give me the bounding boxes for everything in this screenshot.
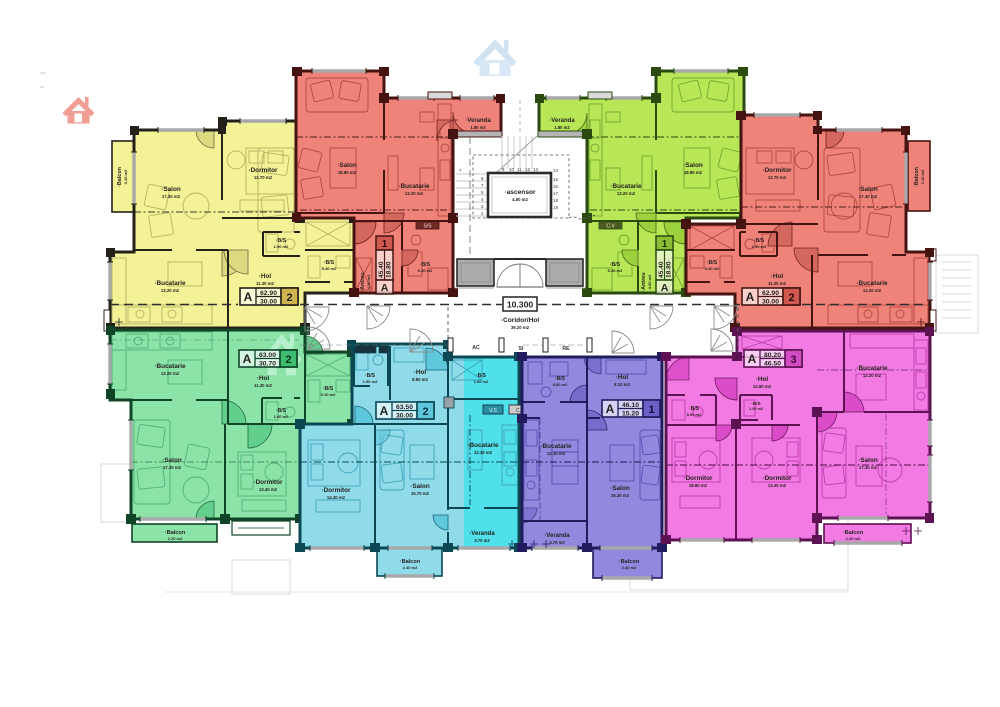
svg-text:17.30 m2: 17.30 m2 [162,194,181,199]
svg-text:3.10 m2: 3.10 m2 [920,169,925,184]
svg-text:·ascensor: ·ascensor [504,189,536,196]
svg-text:45.40: 45.40 [658,261,665,278]
svg-text:5.60 m2: 5.60 m2 [553,382,568,387]
svg-text:·Veranda: ·Veranda [469,531,495,537]
svg-text:·Bucatarie: ·Bucatarie [467,442,499,449]
svg-text:18.80: 18.80 [386,261,393,278]
svg-text:4.80 m2: 4.80 m2 [512,197,528,202]
svg-text:V.S: V.S [489,408,497,414]
svg-text:1.90 m2: 1.90 m2 [363,379,378,384]
svg-text:46.50: 46.50 [764,361,781,368]
svg-text:·Bucatarie: ·Bucatarie [154,363,186,370]
svg-text:1: 1 [648,404,654,416]
svg-text:18.80 m2: 18.80 m2 [684,170,703,175]
svg-text:1.60 m2: 1.60 m2 [274,414,289,419]
svg-text:15: 15 [553,177,558,182]
svg-text:4.30 m2: 4.30 m2 [647,274,652,289]
svg-text:12.70 m2: 12.70 m2 [254,175,273,180]
svg-text:·Dormitor: ·Dormitor [762,167,792,174]
svg-text:16: 16 [553,184,558,189]
svg-text:A: A [748,352,757,366]
svg-text:1: 1 [382,239,388,250]
svg-text:·Salon: ·Salon [858,457,878,464]
svg-text:·Bucatarie: ·Bucatarie [398,183,430,190]
svg-text:2.20 m2: 2.20 m2 [168,536,183,541]
svg-text:5.40 m2: 5.40 m2 [608,268,623,273]
svg-text:·Hol: ·Hol [616,374,629,381]
svg-text:11.30 m2: 11.30 m2 [256,281,275,286]
svg-text:17.30 m2: 17.30 m2 [163,465,182,470]
svg-text:12.20 m2: 12.20 m2 [863,373,882,378]
svg-text:·Veranda: ·Veranda [549,118,575,124]
svg-text:1.80 m2: 1.80 m2 [470,125,486,130]
svg-text:12.70 m2: 12.70 m2 [768,175,787,180]
svg-text:·Bucatarie: ·Bucatarie [856,365,888,372]
svg-text:10: 10 [509,167,514,172]
svg-text:11: 11 [517,167,522,172]
svg-text:13.40 m2: 13.40 m2 [768,483,787,488]
svg-text:·Dormitor: ·Dormitor [762,475,792,482]
svg-text:13.20 m2: 13.20 m2 [161,371,180,376]
svg-text:30.70: 30.70 [259,361,276,368]
svg-text:·Hol: ·Hol [771,273,784,280]
svg-text:5.10 m2: 5.10 m2 [321,392,336,397]
svg-text:45.40: 45.40 [378,261,385,278]
svg-text:2: 2 [422,406,428,418]
svg-text:12.10 m2: 12.10 m2 [547,451,566,456]
svg-text:·Salon: ·Salon [858,186,878,193]
svg-text:3.70 m2: 3.70 m2 [474,538,490,543]
svg-text:2.20 m2: 2.20 m2 [846,536,861,541]
svg-text:18: 18 [553,198,558,203]
svg-text:18.80: 18.80 [666,261,673,278]
svg-text:1.90 m2: 1.90 m2 [274,244,289,249]
svg-text:17.30 m2: 17.30 m2 [859,465,878,470]
svg-text:63.50: 63.50 [396,404,413,411]
svg-text:11.30 m2: 11.30 m2 [768,281,787,286]
svg-text:·Bucatarie: ·Bucatarie [856,280,888,287]
svg-text:3: 3 [790,354,796,366]
svg-text:5.40 m2: 5.40 m2 [322,266,337,271]
svg-text:·Hol: ·Hol [414,369,427,376]
svg-text:11.30 m2: 11.30 m2 [254,383,273,388]
svg-text:13.20 m2: 13.20 m2 [617,191,636,196]
svg-text:2: 2 [285,354,291,366]
svg-text:A: A [661,282,669,294]
svg-text:·Dormitor: ·Dormitor [253,479,283,486]
svg-text:15.20 m2: 15.20 m2 [611,493,630,498]
svg-text:S/S: S/S [423,224,432,230]
svg-text:13.20 m2: 13.20 m2 [405,191,424,196]
svg-text:13.40 m2: 13.40 m2 [259,487,278,492]
svg-text:30.00: 30.00 [396,413,413,420]
svg-text:15.70 m2: 15.70 m2 [411,491,430,496]
svg-text:C.V: C.V [606,224,615,230]
svg-text:·Salon: ·Salon [337,162,357,169]
svg-text:·Hol: ·Hol [259,273,272,280]
svg-text:2: 2 [788,292,794,304]
svg-text:15.20: 15.20 [622,411,639,418]
svg-text:A: A [746,290,755,304]
svg-text:10.300: 10.300 [507,300,534,310]
svg-text:·Bucatarie: ·Bucatarie [540,443,572,450]
svg-text:·Dormitor: ·Dormitor [248,167,278,174]
svg-text:·Bucatarie: ·Bucatarie [154,280,186,287]
svg-text:63.00: 63.00 [259,352,276,359]
svg-text:A: A [243,352,252,366]
svg-text:62.90: 62.90 [260,290,277,297]
svg-text:SI: SI [519,346,524,352]
svg-text:8.10 m2: 8.10 m2 [614,382,630,387]
svg-text:13.20 m2: 13.20 m2 [863,288,882,293]
svg-text:AC: AC [472,345,480,351]
svg-text:·Dormitor: ·Dormitor [683,475,713,482]
svg-text:A: A [244,290,253,304]
svg-text:1: 1 [662,239,668,250]
svg-text:62.90: 62.90 [762,290,779,297]
svg-text:13: 13 [533,167,538,172]
svg-text:2.40 m2: 2.40 m2 [403,565,418,570]
svg-text:5.40 m2: 5.40 m2 [705,266,720,271]
svg-text:·B/S: ·B/S [751,401,760,406]
svg-text:3.10 m2: 3.10 m2 [123,169,128,184]
svg-text:·Salon: ·Salon [161,186,181,193]
svg-text:17.30 m2: 17.30 m2 [859,194,878,199]
svg-text:14: 14 [553,168,558,173]
svg-text:5.00 m2: 5.00 m2 [687,412,702,417]
svg-text:A: A [381,282,389,294]
svg-text:A: A [380,404,389,418]
svg-text:1.60 m2: 1.60 m2 [474,379,489,384]
svg-text:·Salon: ·Salon [410,483,430,490]
svg-text:39.20 m2: 39.20 m2 [511,325,530,330]
svg-text:80.20: 80.20 [764,352,781,359]
svg-text:RE: RE [562,346,570,352]
svg-text:12.80 m2: 12.80 m2 [753,384,772,389]
svg-text:18.80 m2: 18.80 m2 [338,170,357,175]
svg-text:·Coridor/Hol: ·Coridor/Hol [501,317,540,324]
svg-text:12: 12 [525,167,530,172]
svg-text:19: 19 [553,205,558,210]
svg-text:·Salon: ·Salon [162,457,182,464]
svg-text:4.30 m2: 4.30 m2 [366,274,371,289]
svg-text:14.30 m2: 14.30 m2 [327,495,346,500]
svg-text:17: 17 [553,191,558,196]
svg-text:46.10: 46.10 [622,402,639,409]
svg-text:5.40 m2: 5.40 m2 [418,268,433,273]
svg-text:·Hol: ·Hol [756,376,769,383]
svg-text:1.80 m2: 1.80 m2 [554,125,570,130]
svg-text:1.90 m2: 1.90 m2 [752,244,767,249]
svg-text:30.00: 30.00 [762,299,779,306]
svg-text:·Hol: ·Hol [257,375,270,382]
svg-text:·Bucatarie: ·Bucatarie [610,183,642,190]
svg-text:·Salon: ·Salon [683,162,703,169]
svg-text:·Dormitor: ·Dormitor [321,487,351,494]
svg-text:1.90 m2: 1.90 m2 [749,407,763,411]
svg-text:·Salon: ·Salon [610,485,630,492]
svg-text:18.80 m2: 18.80 m2 [689,483,708,488]
svg-text:30.00: 30.00 [260,299,277,306]
svg-text:3.70 m2: 3.70 m2 [549,540,565,545]
svg-text:13.20 m2: 13.20 m2 [161,288,180,293]
svg-text:·Veranda: ·Veranda [544,533,570,539]
svg-text:2.40 m2: 2.40 m2 [622,565,637,570]
svg-text:·Veranda: ·Veranda [465,118,491,124]
svg-text:12.10 m2: 12.10 m2 [474,450,493,455]
svg-text:2: 2 [286,292,292,304]
svg-text:A: A [606,402,615,416]
svg-text:8.80 m2: 8.80 m2 [412,377,428,382]
